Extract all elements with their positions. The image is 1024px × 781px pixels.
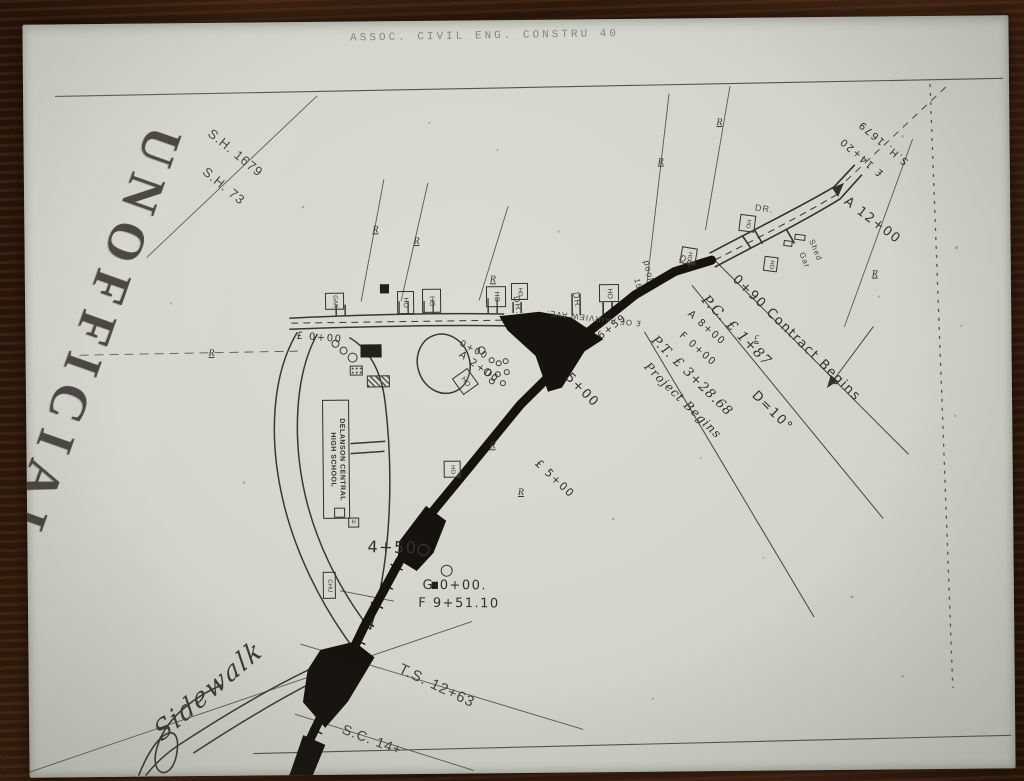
- building: [334, 508, 345, 518]
- survey-mark-symbol: R: [413, 236, 419, 246]
- survey-mark-symbol: R: [490, 274, 496, 284]
- building-ho: HO: [422, 289, 441, 313]
- building: [794, 234, 806, 241]
- survey-mark-tick: [658, 166, 664, 167]
- building-label: HO: [449, 465, 455, 474]
- map-label: F 9+51.10: [418, 596, 500, 612]
- photocopy-sheet: ASSOC. CIVIL ENG. CONSTRU 40 UNOFFICIAL …: [22, 15, 1015, 777]
- building-label: CHU: [326, 579, 332, 592]
- building-label: H: [352, 520, 356, 526]
- map-label: 4+50: [367, 537, 417, 557]
- tree-symbol: [489, 357, 495, 363]
- building: [367, 375, 390, 387]
- survey-mark-symbol: R: [372, 224, 378, 234]
- high-school-label-line2: HIGH SCHOOL: [327, 402, 337, 516]
- survey-mark-tick: [413, 245, 419, 246]
- arrowheads: [825, 183, 846, 388]
- building: [350, 365, 363, 375]
- tree-symbol: [504, 369, 510, 375]
- building: [380, 284, 389, 293]
- survey-mark-symbol: R: [658, 157, 664, 167]
- tree-symbol: [503, 358, 509, 364]
- survey-mark-symbol: R: [208, 348, 214, 358]
- tree-symbol: [441, 565, 453, 577]
- high-school-label-line1: DELANSON CENTRAL: [336, 402, 346, 516]
- building-ho: HO: [397, 291, 414, 314]
- high-school-building: DELANSON CENTRAL HIGH SCHOOL: [322, 400, 350, 519]
- building-label: HO: [428, 296, 435, 307]
- building: [360, 344, 381, 357]
- survey-mark-tick: [872, 278, 878, 279]
- survey-mark-symbol: R: [872, 269, 878, 279]
- alignment-annotation-lines: [642, 86, 952, 619]
- building-ho: HO: [763, 256, 779, 273]
- survey-mark-symbol: R: [716, 117, 722, 127]
- building-chu: CHU: [323, 572, 336, 599]
- building-label: HO: [402, 297, 409, 308]
- survey-mark-tick: [716, 126, 722, 127]
- building-label: HO: [459, 375, 471, 388]
- building-label: HO: [767, 259, 774, 269]
- survey-mark-tick: [372, 233, 378, 234]
- map-content: ASSOC. CIVIL ENG. CONSTRU 40 UNOFFICIAL …: [22, 15, 1015, 777]
- tree-symbol: [496, 360, 502, 366]
- survey-mark-symbol: R: [489, 440, 495, 450]
- tree-symbol: [348, 353, 358, 363]
- tree-symbol: [500, 380, 506, 386]
- high-school-label: DELANSON CENTRAL HIGH SCHOOL: [327, 402, 346, 516]
- building-label: HO: [744, 218, 751, 228]
- building-ho: HO: [738, 214, 756, 233]
- building-h: H: [348, 518, 359, 528]
- survey-mark-tick: [518, 496, 524, 497]
- photo-of-document: ASSOC. CIVIL ENG. CONSTRU 40 UNOFFICIAL …: [0, 0, 1024, 781]
- survey-mark-tick: [209, 357, 215, 358]
- building: [783, 240, 793, 247]
- tree-symbol: [417, 544, 429, 556]
- building-ho: HO: [599, 284, 619, 302]
- building-label: HO: [605, 288, 612, 299]
- tree-symbol: [340, 347, 348, 355]
- building-ho: HO: [444, 461, 461, 478]
- main-road-heavy: [282, 260, 717, 778]
- building-ho: HO: [486, 286, 506, 307]
- map-border-lines: [55, 78, 1011, 755]
- survey-mark-tick: [490, 283, 496, 284]
- building-gar: GAR: [325, 293, 344, 310]
- map-label: G 0+00.: [422, 578, 487, 594]
- building-label: GAR: [332, 295, 338, 308]
- survey-mark-symbol: R: [518, 487, 524, 497]
- survey-mark-tick: [489, 449, 495, 450]
- building-label: HO: [492, 291, 499, 302]
